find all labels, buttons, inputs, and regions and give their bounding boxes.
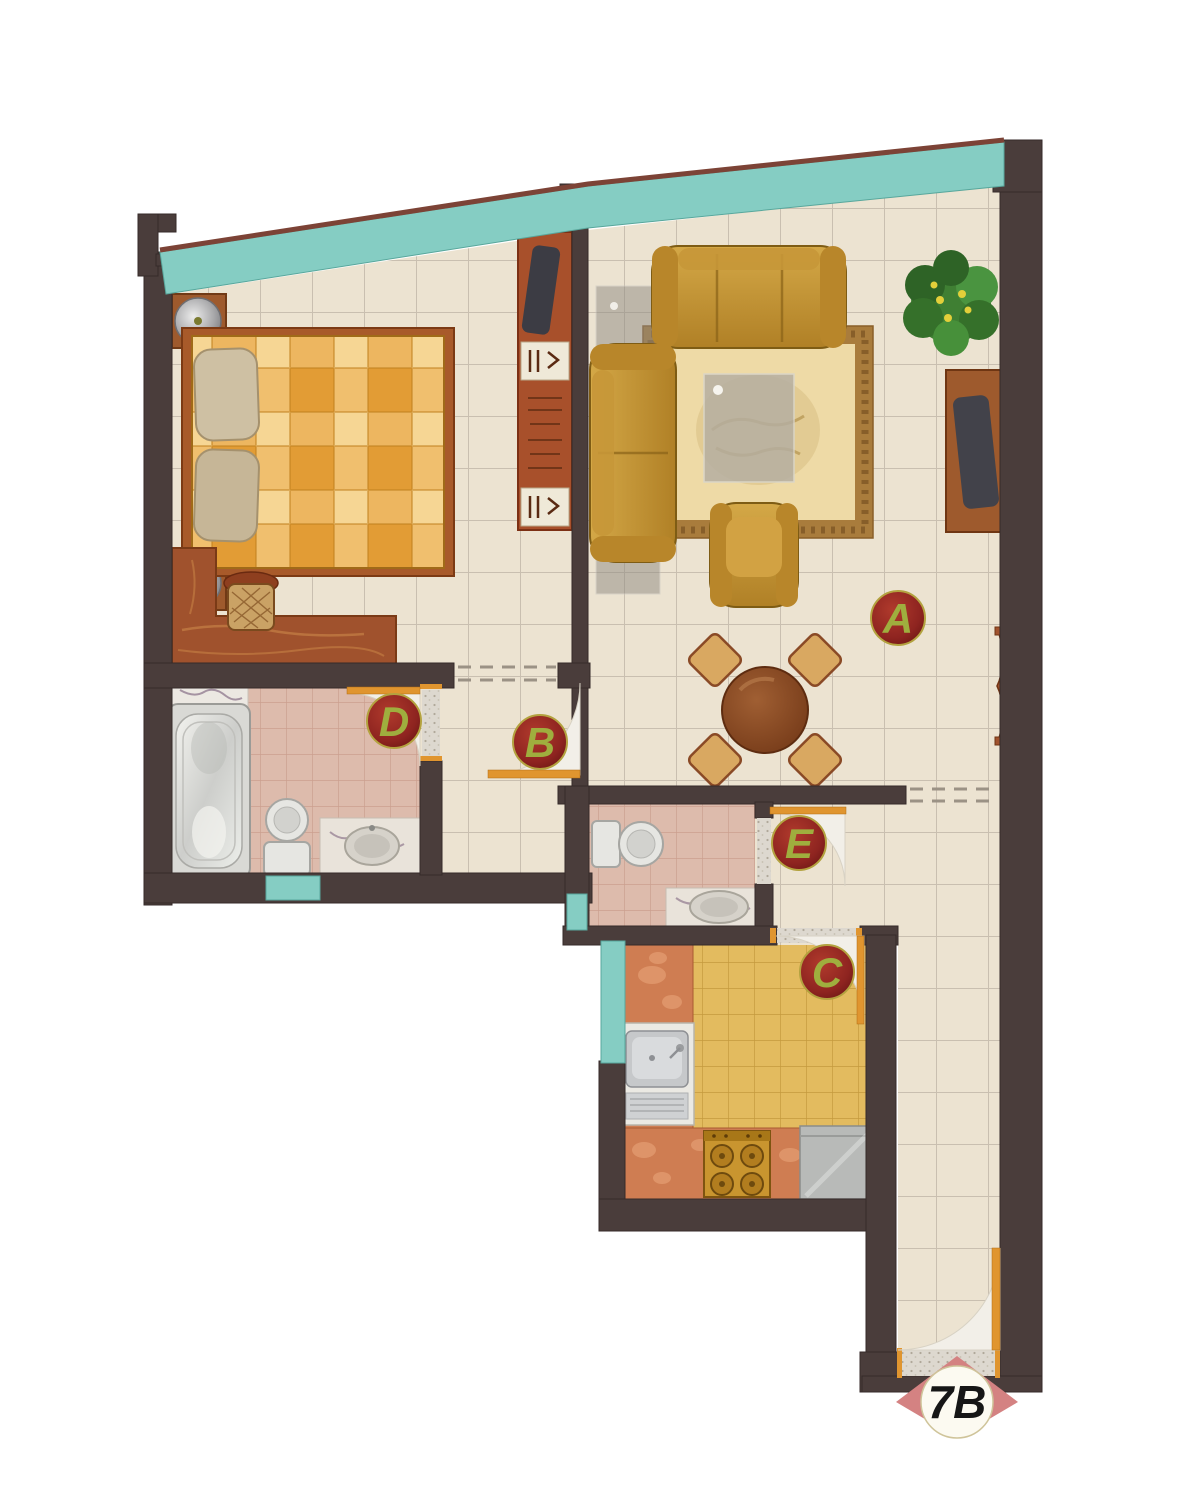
bath-main-window (266, 876, 320, 900)
toilet-small (592, 821, 663, 867)
door-leaf (488, 770, 580, 778)
room-label-kitchen-letter: C (812, 949, 843, 996)
room-label-bathroom-small: E (772, 816, 826, 870)
coffee-table (704, 374, 794, 482)
desk-chair (224, 572, 278, 630)
armchair (710, 503, 798, 607)
sofa-three-seat (652, 246, 846, 348)
wall-stub-bedroom-door (558, 663, 590, 688)
room-label-kitchen: C (800, 945, 854, 999)
pillow-bottom (193, 449, 259, 542)
room-label-living-letter: A (882, 595, 913, 642)
double-bed (182, 328, 454, 576)
wall-bedroom-bottom (144, 663, 454, 688)
door-leaf (992, 1248, 1000, 1350)
wall-kitchen-bottom (599, 1199, 893, 1231)
wall-bath-main-bottom (144, 873, 592, 903)
wall-corridor-left (866, 935, 896, 1359)
tv-cabinet (946, 370, 1006, 532)
refrigerator (800, 1126, 876, 1199)
wall-bath-main-right (420, 761, 442, 875)
pillow-top (193, 348, 259, 441)
wardrobe (518, 232, 572, 530)
room-label-bathroom-main: D (367, 694, 421, 748)
room-label-bedroom-letter: B (525, 719, 555, 766)
kitchen-sink (620, 1023, 694, 1125)
room-label-bathroom-main-letter: D (379, 698, 409, 745)
wall-kitchen-top (563, 926, 777, 945)
floor-plan-page: A B C D E 7B (0, 0, 1189, 1486)
unit-badge-label: 7B (928, 1376, 987, 1428)
wall-left (144, 252, 172, 905)
bathtub (168, 704, 250, 878)
bath-small-window (567, 894, 587, 930)
stove (704, 1131, 770, 1197)
kitchen-window (601, 941, 625, 1063)
floor-plan-7b: A B C D E 7B (0, 0, 1189, 1486)
speaker-highlight (610, 302, 618, 310)
sofa-two-seat (590, 344, 676, 562)
wall-living-bottom (558, 786, 906, 804)
door-leaf (857, 936, 864, 1024)
door-leaf (347, 687, 420, 694)
lamp-finial (194, 317, 202, 325)
vanity-sink-main (320, 818, 422, 877)
room-label-living: A (871, 591, 925, 645)
wall-right (1000, 142, 1042, 1392)
wall-cap-top-left (138, 214, 158, 276)
room-label-bedroom: B (513, 715, 567, 769)
room-label-bathroom-small-letter: E (785, 820, 815, 867)
door-leaf (770, 807, 846, 814)
